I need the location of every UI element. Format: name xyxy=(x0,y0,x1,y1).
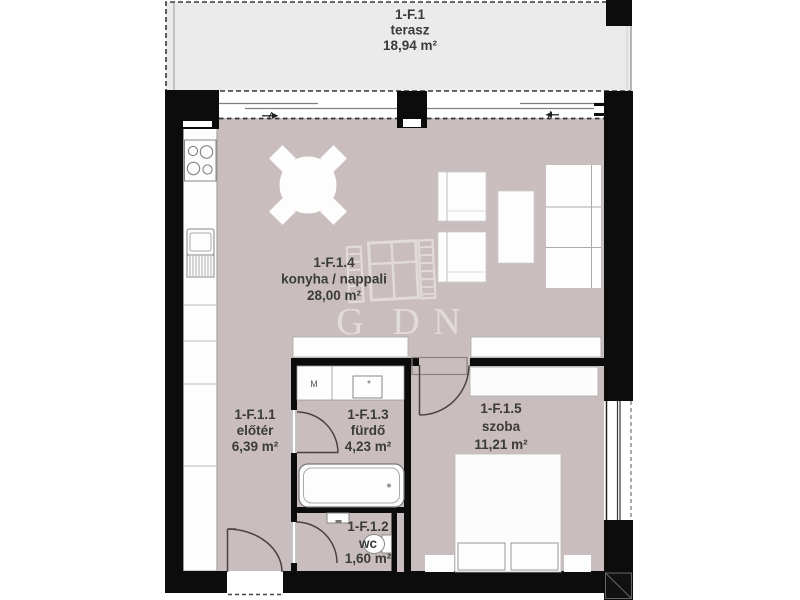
svg-text:előtér: előtér xyxy=(237,423,275,438)
svg-text:1-F.1.4: 1-F.1.4 xyxy=(313,255,355,270)
svg-text:1-F.1.5: 1-F.1.5 xyxy=(480,401,522,416)
svg-text:szoba: szoba xyxy=(482,419,521,434)
svg-text:N: N xyxy=(433,301,460,343)
svg-text:konyha / nappali: konyha / nappali xyxy=(281,272,387,287)
svg-text:1-F.1: 1-F.1 xyxy=(395,7,426,22)
svg-text:1,60 m²: 1,60 m² xyxy=(345,551,392,566)
svg-text:18,94 m²: 18,94 m² xyxy=(383,38,438,53)
svg-text:1-F.1.1: 1-F.1.1 xyxy=(234,407,276,422)
svg-text:M: M xyxy=(310,379,318,389)
svg-text:terasz: terasz xyxy=(390,23,429,38)
svg-text:6,39 m²: 6,39 m² xyxy=(232,439,279,454)
svg-text:28,00 m²: 28,00 m² xyxy=(307,288,362,303)
svg-text:fürdő: fürdő xyxy=(351,423,386,438)
svg-text:wc: wc xyxy=(358,536,378,551)
svg-text:1-F.1.2: 1-F.1.2 xyxy=(347,519,388,534)
svg-text:4,23 m²: 4,23 m² xyxy=(345,439,392,454)
svg-text:1-F.1.3: 1-F.1.3 xyxy=(347,407,389,422)
svg-text:11,21 m²: 11,21 m² xyxy=(474,437,528,452)
